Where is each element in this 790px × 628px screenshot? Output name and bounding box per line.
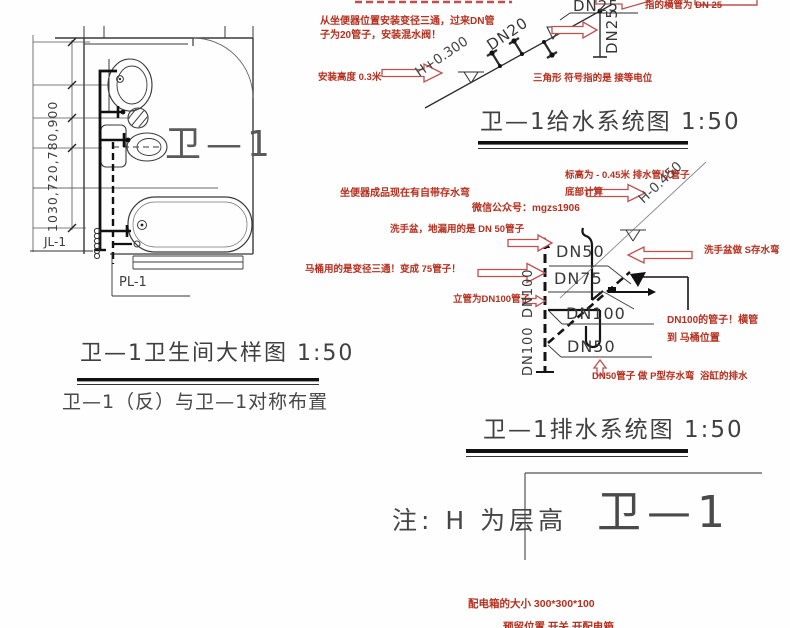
jl-riser-label: JL-1 [44,236,66,250]
drain-note-ptrap: DN50管子 做 P型存水弯 [592,372,694,383]
drain-note-wechat: 微信公众号：mgzs1906 [472,203,580,215]
bathtub [128,197,252,252]
floor-drain [124,104,152,133]
drain-note-riser: 立管为DN100管子 [453,295,530,306]
drain-dn100-branch-label: DN100 [566,305,626,323]
supply-dn25-riser-label: DN25 [604,8,621,54]
arrow-strap-note [628,247,692,263]
drain-note-toilet: 坐便器成品现在有自带存水弯 [340,188,470,200]
s-trap [582,228,603,300]
drain-dn75-label: DN75 [554,270,603,288]
jl-riser-coil [94,228,99,258]
supply-title-underline [478,141,688,149]
footer-elec-note-clipped: 预留位置 开关 开配电箱 [503,621,614,628]
drain-note-basin: 洗手盆，地漏用的是 DN 50管子 [390,225,524,236]
arrow-tee-note [552,22,597,38]
drain-title-underline [466,449,688,457]
plan-subtitle: 卫—1（反）与卫—1对称布置 [62,392,328,414]
drain-note-tee: 马桶用的是变径三通！变成 75管子！ [305,265,461,276]
plan-title-underline [77,378,319,385]
drain-dn100-riser-label-1: DN100 [522,268,537,318]
tub-ledge [133,256,243,269]
footer-elec-note: 配电箱的大小 300*300*100 [468,598,595,610]
drain-note-dn100-line2: 到 马桶位置 [667,333,720,345]
supply-note-triangle: 三角形 符号指的是 接等电位 [533,74,652,85]
toilet [101,125,167,167]
plan-room-label: 卫—1 [165,124,275,165]
plan-title: 卫—1卫生间大样图 1:50 [80,341,354,366]
drain-note-dn100-line1: DN100的管子！横管 [667,315,758,327]
drain-note-strap: 洗手盆做 S存水弯 [704,246,779,257]
footer-room-tag: 卫—1 [597,488,731,539]
supply-note-height: 安装高度 0.3米 [318,73,381,84]
footer-note: 注: H 为层高 [392,507,567,536]
drain-note-tub: 浴缸的排水 [700,372,748,383]
drain-dn50-top-label: DN50 [556,243,605,261]
drain-dn50-tub-label: DN50 [567,338,616,356]
supply-note-tee-line2: 子为20管子，安装混水阀！ [320,30,441,42]
door-arc [193,38,253,98]
cad-sheet: 1030,720,780,900 卫—1 JL-1 PL-1 卫—1卫生间大样图… [0,0,790,628]
plan-dimension-text: 1030,720,780,900 [46,101,60,232]
drain-note-elev-line2: 底部计算 [565,188,603,199]
supply-note-dn25: 指的横管为 DN 25 [645,1,722,12]
pl-riser-label: PL-1 [119,276,147,291]
supply-note-tee-line1: 从坐便器位置安装变径三通，过来DN管 [320,16,494,28]
drain-title: 卫—1排水系统图 1:50 [483,417,744,443]
elevation-flag-drain [620,230,646,241]
supply-title: 卫—1给水系统图 1:50 [480,109,741,135]
drain-dn100-riser-label-2: DN100 [522,326,537,376]
